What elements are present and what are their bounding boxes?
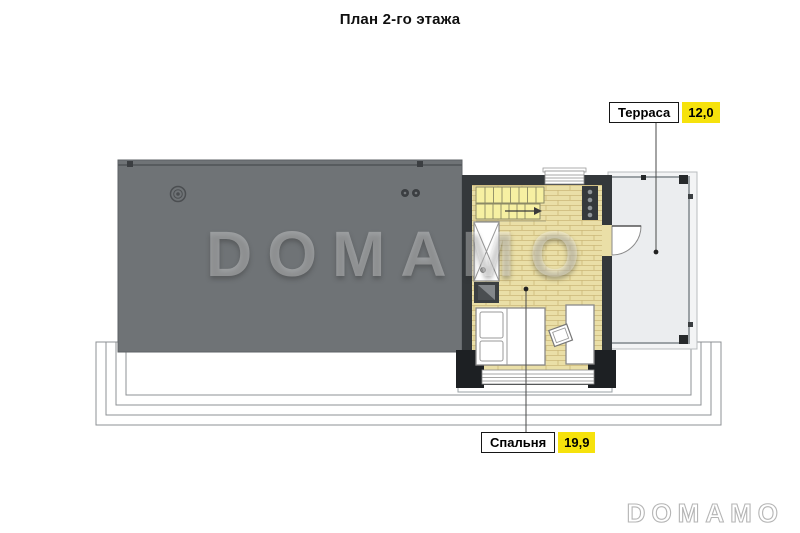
wardrobe <box>474 222 499 281</box>
floor-plan-drawing <box>0 0 800 533</box>
room-label-terrace: Терраса 12,0 <box>609 102 720 123</box>
terrace-leader-dot <box>654 250 659 255</box>
bedroom-leader-dot <box>524 287 529 292</box>
duct-shaft <box>474 282 499 303</box>
staircase <box>476 187 546 221</box>
room-name-terrace: Терраса <box>609 102 679 123</box>
brand-logo: DOMAMO <box>627 500 784 526</box>
roof-marker-left <box>127 161 133 167</box>
roof <box>118 160 462 352</box>
room-label-bedroom: Спальня 19,9 <box>481 432 595 453</box>
window-top <box>543 168 586 184</box>
roof-marker-right <box>417 161 423 167</box>
pillow <box>480 312 503 338</box>
bed <box>476 308 545 365</box>
floor-plan-page: План 2-го этажа <box>0 0 800 533</box>
pillow <box>480 341 503 361</box>
room-area-terrace: 12,0 <box>682 102 719 123</box>
ground-steps-outline <box>96 342 721 425</box>
window-bottom <box>482 370 594 384</box>
terrace <box>607 172 697 349</box>
radiator <box>582 186 598 220</box>
room-area-bedroom: 19,9 <box>558 432 595 453</box>
room-name-bedroom: Спальня <box>481 432 555 453</box>
terrace-deck <box>608 177 689 343</box>
